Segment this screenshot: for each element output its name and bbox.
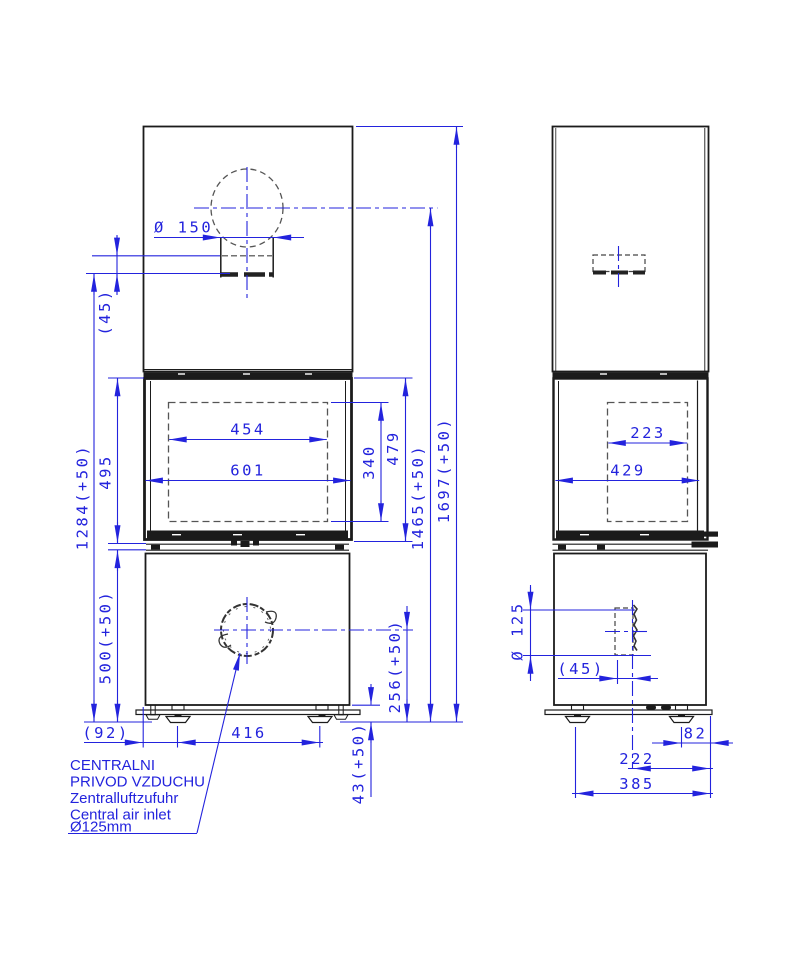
dim-air-inlet-offset: (45) [557, 660, 604, 678]
dim-foot-to-back-edge: 82 [684, 725, 708, 743]
dim-collar-to-floor-height: 1284(+50) [74, 444, 92, 551]
dim-inlet-axis-to-back-edge: 222 [619, 750, 655, 768]
dim-flue-collar-height: (45) [96, 288, 114, 335]
dim-overall-height: 1697(+50) [435, 417, 453, 524]
dim-feet-span: 385 [619, 775, 655, 793]
dim-flue-axis-height: 1465(+50) [409, 444, 427, 551]
note-line-5: Ø125mm [70, 819, 132, 836]
front-right-foot [308, 717, 332, 723]
technical-drawing: Ø 150 (45) 1284(+50) 495 500(+50) [0, 0, 800, 960]
dim-door-height: 479 [384, 430, 402, 466]
side-front-foot [566, 717, 590, 723]
dim-glass-height: 340 [360, 444, 378, 480]
drawing-sheet: Ø 150 (45) 1284(+50) 495 500(+50) [0, 0, 800, 960]
side-back-foot [670, 717, 694, 723]
dim-flue-pipe-diameter: Ø 150 [154, 219, 213, 237]
note-line-2: PRIVOD VZDUCHU [70, 774, 205, 791]
side-base-plate [545, 710, 712, 715]
dim-air-inlet-axis-height: 256(+50) [386, 619, 404, 714]
dim-glass-depth: 223 [630, 424, 666, 442]
door-handle-upper [702, 532, 719, 537]
front-left-foot [166, 717, 190, 723]
dim-feet-spacing: 416 [231, 724, 267, 742]
note-line-3: Zentralluftzufuhr [70, 790, 178, 807]
dim-air-inlet-diameter: Ø 125 [509, 601, 527, 660]
front-base-plate [136, 710, 360, 715]
dim-middle-section-height: 495 [97, 454, 115, 490]
dim-floor-clearance: 43(+50) [350, 722, 368, 805]
dim-body-width: 601 [230, 462, 266, 480]
dim-base-section-height: 500(+50) [97, 590, 115, 685]
note-line-1: CENTRALNI [70, 757, 155, 774]
dim-edge-to-foot: (92) [82, 724, 129, 742]
side-air-inlet [615, 605, 637, 655]
front-view-dimensions: Ø 150 (45) 1284(+50) 495 500(+50) [74, 127, 464, 805]
dim-glass-width: 454 [230, 421, 266, 439]
dim-body-depth: 429 [610, 462, 646, 480]
